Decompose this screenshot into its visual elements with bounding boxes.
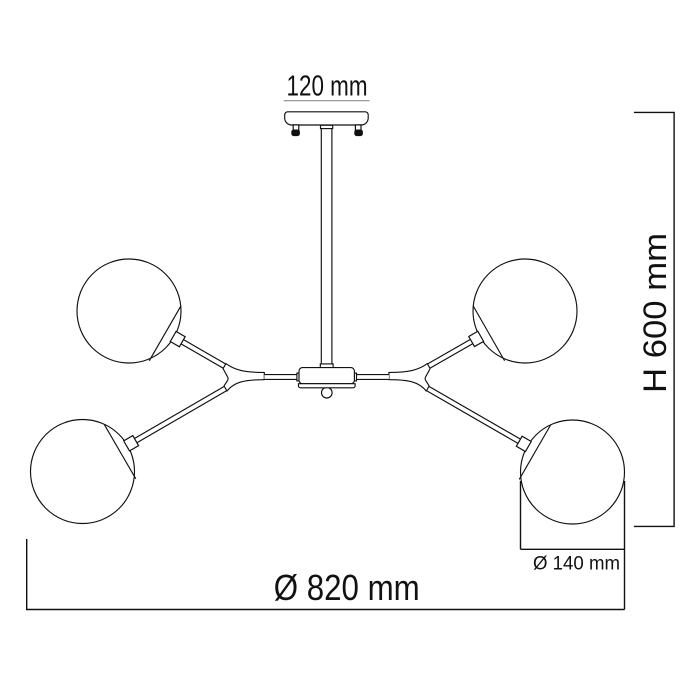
svg-text:Ø 140 mm: Ø 140 mm <box>533 554 620 575</box>
svg-text:Ø 820 mm: Ø 820 mm <box>274 567 420 608</box>
svg-text:H 600 mm: H 600 mm <box>637 233 673 393</box>
svg-text:120 mm: 120 mm <box>287 70 368 102</box>
